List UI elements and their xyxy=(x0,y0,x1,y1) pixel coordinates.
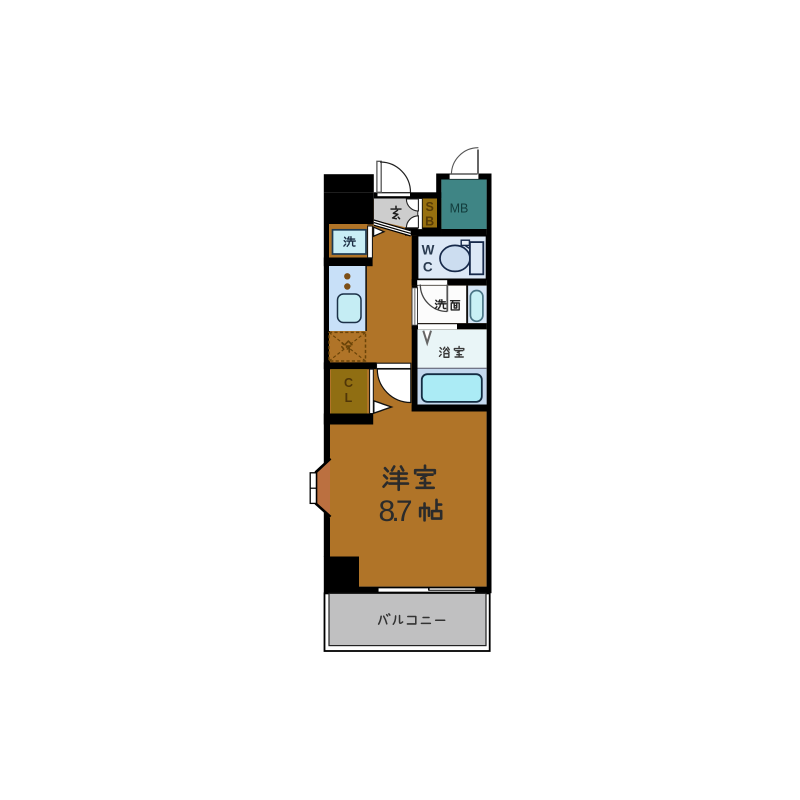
svg-text:W: W xyxy=(422,242,435,257)
svg-text:C: C xyxy=(344,376,353,390)
svg-text:MB: MB xyxy=(450,201,469,215)
svg-text:C: C xyxy=(423,259,433,274)
svg-text:8.7: 8.7 xyxy=(379,495,413,528)
svg-text:B: B xyxy=(425,215,434,229)
svg-text:L: L xyxy=(345,391,353,405)
svg-text:S: S xyxy=(426,200,434,214)
